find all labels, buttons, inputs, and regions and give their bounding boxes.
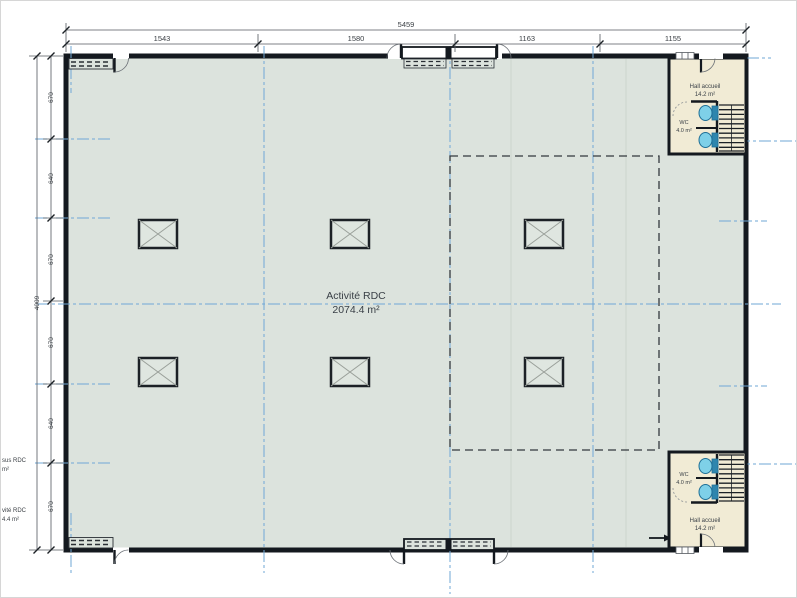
window-top-right	[676, 53, 694, 60]
toilet-fixture	[699, 459, 718, 474]
swing-door-bottom-left	[113, 548, 129, 565]
toilet-fixture	[699, 133, 718, 148]
hall-top-name: Hall accueil	[690, 84, 721, 90]
dim-top-segment-1: 1543	[154, 34, 171, 43]
dim-left-segment-4: 670	[48, 337, 55, 348]
sectional-door-top-left	[69, 59, 113, 70]
dim-left-segment-3: 670	[48, 254, 55, 265]
toilet-fixture	[699, 485, 718, 500]
dim-left-segment-6: 670	[48, 501, 55, 512]
hall-bottom-area: 14.2 m²	[695, 526, 715, 532]
dim-left-segment-5: 640	[48, 418, 55, 429]
edge-label-1-line-2: m²	[2, 467, 9, 473]
top-dimension-labels: 5459 1543 1580 1163 1155	[154, 20, 681, 43]
floor-plan-canvas: Hall accueil 14.2 m² WC 4.0 m²	[0, 0, 797, 598]
floor-label-name: Activité RDC	[326, 290, 386, 302]
floor-label-area: 2074.4 m²	[332, 304, 380, 316]
dim-top-segment-2: 1580	[348, 34, 365, 43]
skylight-box	[139, 220, 177, 248]
edge-label-2-line-1: vité RDC	[2, 508, 27, 514]
sectional-door-bottom-left	[69, 538, 113, 549]
skylight-box	[139, 358, 177, 386]
hall-accueil-bottom-room: WC 4.0 m² Hall accueil 14.2 m²	[669, 452, 746, 554]
wc-bottom-area: 4.0 m²	[676, 480, 692, 486]
wc-top-area: 4.0 m²	[676, 128, 692, 134]
dim-top-total: 5459	[398, 20, 415, 29]
exterior-walls	[66, 56, 746, 550]
dim-top-segment-4: 1155	[665, 34, 681, 43]
dim-left-segment-2: 640	[48, 173, 55, 184]
hall-bottom-name: Hall accueil	[690, 518, 721, 524]
floor-plan-svg: Hall accueil 14.2 m² WC 4.0 m²	[1, 1, 797, 598]
left-edge-labels: sus RDC m² vité RDC 4.4 m²	[2, 458, 27, 523]
dim-top-segment-3: 1163	[519, 34, 535, 43]
skylight-box	[525, 220, 563, 248]
edge-label-1-line-1: sus RDC	[2, 458, 27, 464]
hall-accueil-top-room: Hall accueil 14.2 m² WC 4.0 m²	[669, 53, 746, 155]
building-shell	[66, 56, 746, 550]
wc-bottom-name: WC	[679, 472, 688, 478]
edge-label-2-line-2: 4.4 m²	[2, 517, 19, 523]
skylight-box	[331, 358, 369, 386]
dim-left-segment-1: 670	[48, 92, 55, 103]
hall-top-area: 14.2 m²	[695, 92, 715, 98]
skylight-box	[331, 220, 369, 248]
toilet-fixture	[699, 106, 718, 121]
dim-left-total: 4009	[34, 295, 41, 310]
skylight-box	[525, 358, 563, 386]
wc-top-name: WC	[679, 120, 688, 126]
window-bottom-right	[676, 547, 694, 554]
